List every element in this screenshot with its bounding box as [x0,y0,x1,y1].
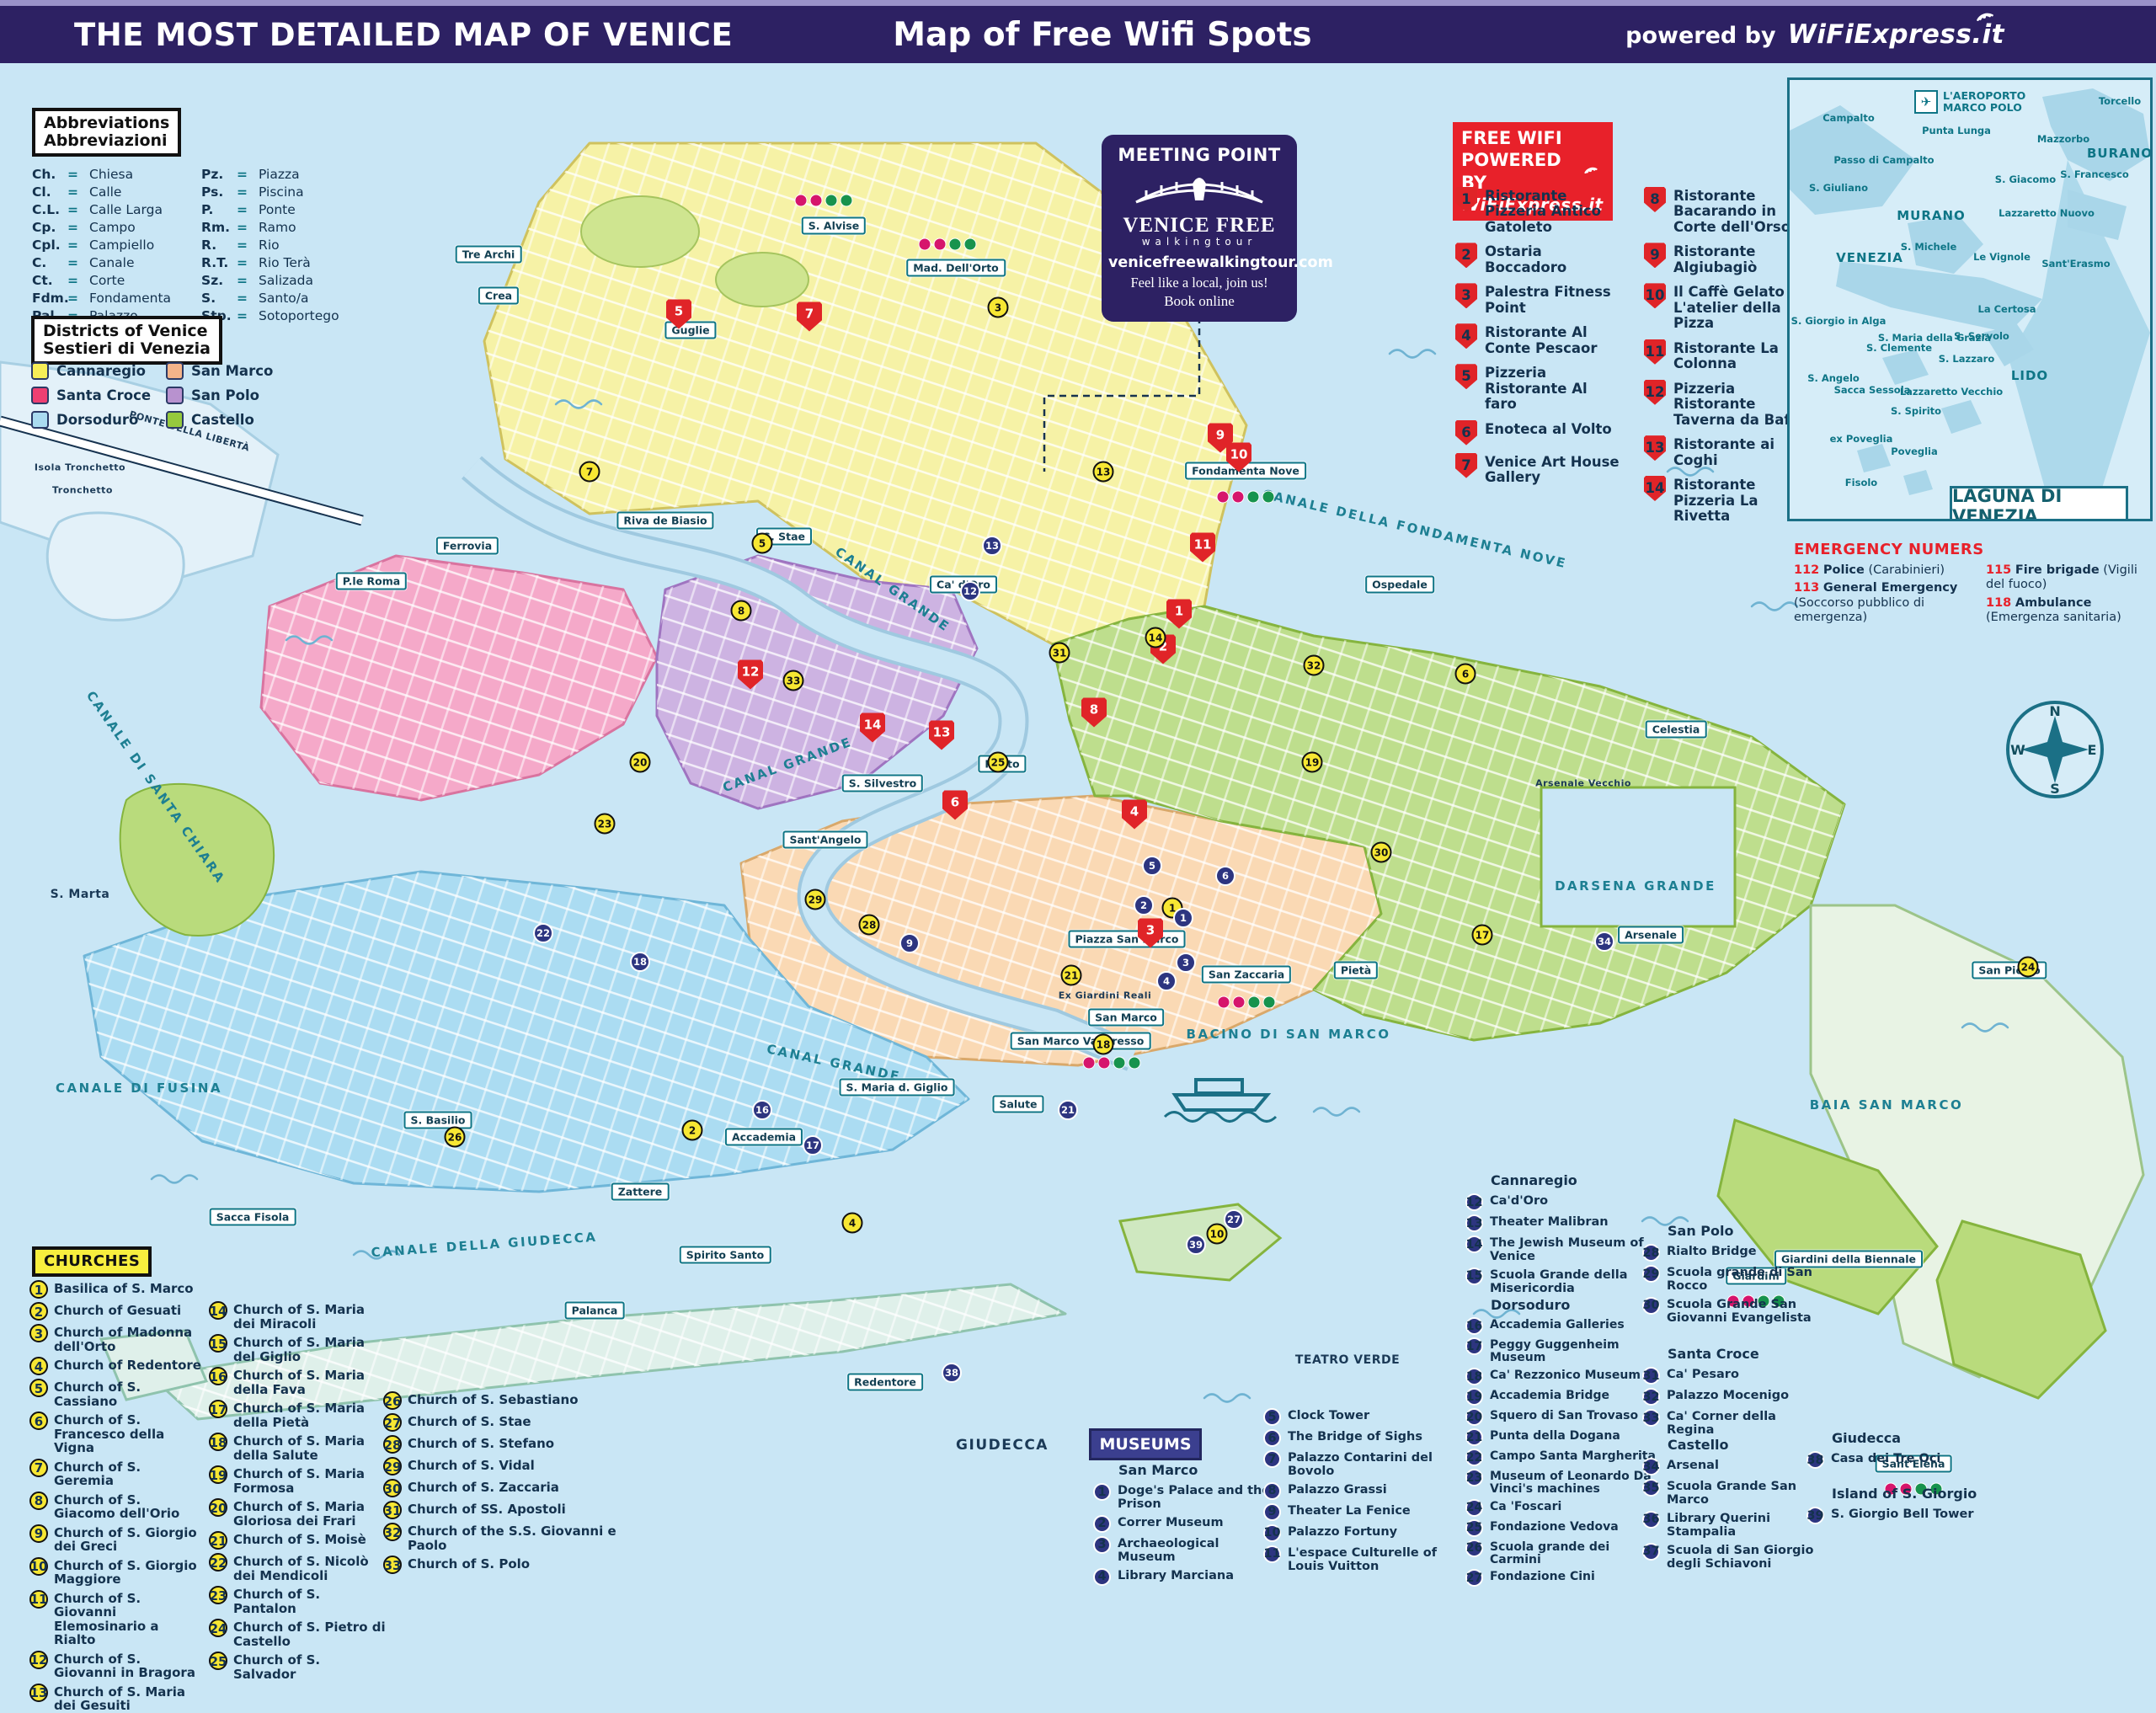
water-label: CANAL GRANDE [721,734,855,795]
church-number-badge: 30 [383,1479,402,1497]
lagoon-place-label: S. Giorgio in Alga [1791,316,1886,326]
vaporetto-line-badges [795,195,853,207]
church-marker: 33 [783,670,804,691]
abbreviation-row: Ct.=Corte [32,273,171,288]
church-number-badge: 28 [383,1435,402,1454]
museum-number-badge: 8 [1263,1482,1281,1500]
museum-list-row: 13 Theater Malibran [1465,1214,1655,1232]
church-marker: 8 [731,600,752,622]
lagoon-place-label: S. Servolo [1954,331,2009,341]
museum-number-badge: 38 [1806,1451,1824,1469]
wifi-spot-marker: 13 [929,721,954,750]
church-marker: 29 [805,889,826,910]
vaporetto-stop-label: Sacca Fisola [210,1209,296,1226]
district-legend-item: Castello [166,411,292,429]
museum-number-badge: 22 [1465,1449,1483,1466]
church-number-badge: 9 [29,1524,48,1543]
wifi-shield-badge: 13 [1644,435,1666,461]
museum-list-row: 31 Ca' Pesaro [1642,1367,1819,1385]
church-list-row: 24 Church of S. Pietro di Castello [209,1619,386,1648]
lagoon-place-label: MURANO [1897,210,1966,223]
museum-list-row: 27 Fondazione Cini [1465,1569,1657,1587]
venice-wifi-map: { "header": { "title": "THE MOST DETAILE… [0,0,2156,1572]
wifi-shield-badge: 14 [1644,476,1666,501]
bridge-logo-icon [1108,165,1290,212]
church-list-row: 22 Church of S. Nicolò dei Mendicoli [209,1553,386,1582]
museum-list-row: 29 Scuola grande di San Rocco [1642,1265,1819,1294]
church-number-badge: 4 [29,1357,48,1375]
museum-list-row: 33 Ca' Corner della Regina [1642,1409,1819,1438]
church-marker: 24 [2018,957,2039,978]
museum-marker: 12 [960,581,980,601]
museum-number-badge: 32 [1642,1388,1660,1406]
museum-number-badge: 30 [1642,1297,1660,1315]
museum-list-row: 16 Accademia Galleries [1465,1317,1657,1335]
water-label: CANALE DI SANTA CHIARA [83,688,228,886]
vaporetto-stop-label: Ospedale [1365,576,1434,594]
church-list-row: 5 Church of S. Cassiano [29,1379,202,1408]
church-list-row: 29 Church of S. Vidal [383,1457,627,1476]
vaporetto-line-badges [919,238,977,251]
church-list-row: 11 Church of S. Giovanni Elemosinario a … [29,1590,202,1647]
lagoon-place-label: S. Angelo [1807,373,1860,383]
vaporetto-stop-label: Piazza San Marco [1069,931,1186,948]
lagoon-place-label: S. Clemente [1866,343,1932,353]
wifi-spot-marker: 6 [942,791,968,820]
museum-marker: 5 [1142,856,1162,876]
church-number-badge: 27 [383,1413,402,1432]
church-marker: 28 [859,915,880,936]
museum-marker: 3 [1176,953,1196,973]
meeting-point-card: MEETING POINT VENICE FREE walkingtour ve… [1102,135,1297,322]
emergency-row: 112 Police (Carabinieri) [1794,563,1964,578]
vaporetto-stop-label: Redentore [847,1374,923,1391]
abbreviations-col1: Ch.=ChiesaCl.=CalleC.L.=Calle LargaCp.=C… [32,167,171,323]
church-number-badge: 1 [29,1280,48,1299]
abbreviation-row: Cp.=Campo [32,220,171,235]
museum-marker: 27 [1224,1209,1244,1230]
wifi-shield-badge: 2 [1455,243,1477,268]
museum-number-badge: 3 [1093,1536,1111,1554]
wifi-spot-row: 6 Enoteca al Volto [1455,420,1624,446]
vaporetto-stop-label: Mad. Dell'Orto [906,259,1006,277]
museum-list-row: 15 Scuola Grande della Misericordia [1465,1267,1655,1296]
wifi-shield-badge: 10 [1644,283,1666,308]
wifi-spot-row: 3 Palestra Fitness Point [1455,283,1624,316]
church-marker: 21 [1061,965,1082,986]
wifi-arcs-icon [1971,0,1999,28]
lagoon-place-label: BURANO [2087,147,2153,161]
church-list-row: 28 Church of S. Stefano [383,1435,627,1454]
district-legend-item: San Marco [166,362,292,380]
wifi-shield-badge: 6 [1455,420,1477,446]
wifi-arcs-icon [1580,157,1602,179]
vaporetto-stop-label: Guglie [664,322,716,339]
church-marker: 7 [579,462,600,483]
museums-section-castello: Castello 34 Arsenal 35 Scuola Grande San… [1642,1437,1823,1572]
museum-list-row: 8 Palazzo Grassi [1263,1482,1449,1500]
church-number-badge: 24 [209,1619,227,1637]
district-color-swatch [166,387,184,404]
wifi-shield-badge: 11 [1644,339,1666,365]
airport-label: ✈ L'AEROPORTOMARCO POLO [1914,90,2025,115]
vaporetto-stop-label: Sant'Angelo [782,831,867,849]
abbreviation-row: Ch.=Chiesa [32,167,171,182]
emergency-col1: 112 Police (Carabinieri)113 General Emer… [1794,563,1964,626]
museum-list-row: 34 Arsenal [1642,1458,1823,1476]
museum-list-row: 39 S. Giorgio Bell Tower [1806,1507,2000,1524]
abbreviation-row: Rm.=Ramo [201,220,339,235]
wifi-spot-list: 1 Ristorante Pizzeria Antico Gatoleto 2 … [1455,187,1812,524]
church-marker: 20 [630,752,651,773]
abbreviation-row: C.=Canale [32,255,171,270]
church-number-badge: 22 [209,1553,227,1572]
church-list-row: 3 Church of Madonna dell'Orto [29,1324,202,1353]
church-list-row: 1 Basilica of S. Marco [29,1280,202,1299]
wifi-spot-marker: 1 [1166,600,1192,629]
church-list-row: 33 Church of S. Polo [383,1556,627,1574]
church-marker: 18 [1093,1034,1114,1055]
museum-list-row: 9 Theater La Fenice [1263,1503,1449,1521]
abbreviation-row: Cpl.=Campiello [32,237,171,253]
museum-marker: 21 [1058,1100,1078,1120]
museum-number-badge: 5 [1263,1408,1281,1426]
church-list-row: 25 Church of S. Salvador [209,1652,386,1681]
museum-marker: 6 [1215,866,1235,886]
church-number-badge: 26 [383,1391,402,1410]
museum-list-row: 5 Clock Tower [1263,1408,1449,1426]
museum-list-row: 6 The Bridge of Sighs [1263,1429,1449,1447]
museums-section-dorsoduro: Dorsoduro 16 Accademia Galleries 17 Pegg… [1465,1297,1657,1587]
wifi-spot-row: 7 Venice Art House Gallery [1455,453,1624,486]
church-list-row: 32 Church of the S.S. Giovanni e Paolo [383,1523,627,1552]
museum-number-badge: 24 [1465,1499,1483,1517]
museum-marker: 9 [899,933,920,953]
church-number-badge: 33 [383,1556,402,1574]
church-list-row: 27 Church of S. Stae [383,1413,627,1432]
museum-marker: 18 [630,952,650,972]
wifi-spot-marker: 14 [860,713,885,743]
lagoon-place-label: Punta Lunga [1922,125,1991,136]
museum-number-badge: 7 [1263,1450,1281,1468]
church-list-row: 30 Church of S. Zaccaria [383,1479,627,1497]
vaporetto-stop-label: Accademia [725,1129,803,1146]
museum-marker: 38 [942,1363,962,1383]
church-list-row: 21 Church of S. Moisè [209,1531,386,1550]
lagoon-place-label: Poveglia [1891,446,1938,456]
museums-title: MUSEUMS [1089,1428,1202,1460]
book-online-text: Book online [1108,293,1290,310]
emergency-row: 118 Ambulance (Emergenza sanitaria) [1986,596,2156,626]
museum-marker: 22 [533,923,553,943]
vaporetto-stop-label: Palanca [565,1302,625,1320]
vaporetto-stop-label: S. Silvestro [842,775,923,792]
water-label: BACINO DI SAN MARCO [1187,1027,1391,1042]
museums-section-san-marco-2: 5 Clock Tower 6 The Bridge of Sighs 7 Pa… [1263,1408,1449,1574]
museum-list-row: 35 Scuola Grande San Marco [1642,1479,1823,1508]
museums-section-santa-croce: Santa Croce 31 Ca' Pesaro 32 Palazzo Moc… [1642,1346,1819,1438]
church-list-row: 10 Church of S. Giorgio Maggiore [29,1557,202,1587]
museum-number-badge: 10 [1263,1524,1281,1542]
page-subtitle: Map of Free Wifi Spots [893,16,1311,54]
vaporetto-stop-label: S. Alvise [802,217,866,235]
wifi-spot-row: 2 Ostaria Boccadoro [1455,243,1624,275]
vaporetto-stop-label: Celestia [1646,721,1707,739]
district-legend-item: Santa Croce [31,387,166,404]
museum-number-badge: 6 [1263,1429,1281,1447]
abbreviation-row: R.=Rio [201,237,339,253]
vaporetto-line-badges [1218,996,1276,1009]
church-number-badge: 19 [209,1465,227,1484]
water-label: BAIA SAN MARCO [1810,1097,1964,1113]
church-marker: 4 [842,1213,863,1234]
wifi-spot-row: 4 Ristorante Al Conte Pescaor [1455,323,1624,356]
museums-section-giudecca: Giudecca 38 Casa dei Tre Oci [1806,1430,1988,1469]
museum-number-badge: 16 [1465,1317,1483,1335]
church-number-badge: 6 [29,1411,48,1430]
wifi-spot-marker: 4 [1122,800,1147,830]
church-marker: 30 [1371,842,1392,863]
museum-list-row: 21 Punta della Dogana [1465,1428,1657,1446]
lagoon-place-label: Le Vignole [1973,252,2031,262]
museum-number-badge: 33 [1642,1409,1660,1427]
museum-number-badge: 28 [1642,1244,1660,1262]
districts-title: Districts of Venice Sestieri di Venezia [31,316,222,365]
vaporetto-stop-label: San Zaccaria [1202,966,1291,984]
church-list-row: 31 Church of SS. Apostoli [383,1501,627,1519]
church-number-badge: 31 [383,1501,402,1519]
museum-number-badge: 12 [1465,1193,1483,1211]
church-marker: 2 [682,1120,703,1141]
museum-list-row: 36 Library Querini Stampalia [1642,1511,1823,1540]
lagoon-place-label: Campalto [1822,113,1875,123]
church-list-row: 18 Church of S. Maria della Salute [209,1433,386,1462]
water-label: DARSENA GRANDE [1555,878,1716,894]
church-number-badge: 32 [383,1523,402,1541]
water-label: CANALE DELLA GIUDECCA [371,1230,598,1261]
churches-col2: 14 Church of S. Maria dei Miracoli 15 Ch… [209,1301,386,1681]
church-list-row: 8 Church of S. Giacomo dell'Orio [29,1492,202,1521]
wifi-spot-marker: 11 [1190,533,1215,563]
museum-number-badge: 11 [1263,1545,1281,1563]
place-label: Ex Giardini Reali [1059,990,1152,1001]
lagoon-place-label: S. Francesco [2060,169,2129,179]
abbreviation-row: Fdm.=Fondamenta [32,291,171,306]
church-number-badge: 10 [29,1557,48,1576]
church-list-row: 14 Church of S. Maria dei Miracoli [209,1301,386,1331]
abbreviation-row: Pz.=Piazza [201,167,339,182]
church-number-badge: 20 [209,1498,227,1517]
church-list-row: 23 Church of S. Pantalon [209,1586,386,1615]
wifi-shield-badge: 5 [1455,364,1477,389]
museum-list-row: 14 The Jewish Museum of Venice [1465,1235,1655,1264]
museum-list-row: 1 Doge's Palace and the Prison [1093,1483,1274,1512]
abbreviation-row: C.L.=Calle Larga [32,202,171,217]
museum-number-badge: 25 [1465,1519,1483,1537]
district-color-swatch [31,411,49,429]
church-number-badge: 3 [29,1324,48,1342]
museum-number-badge: 23 [1465,1469,1483,1486]
museum-number-badge: 17 [1465,1337,1483,1355]
vaporetto-stop-label: Salute [992,1096,1043,1113]
museum-number-badge: 35 [1642,1479,1660,1497]
museum-number-badge: 27 [1465,1569,1483,1587]
wifi-shield-badge: 1 [1455,187,1477,212]
lagoon-place-label: Mazzorbo [2037,134,2089,144]
museum-number-badge: 37 [1642,1543,1660,1561]
museum-marker: 39 [1186,1235,1206,1255]
vaporetto-line-badges [1217,491,1275,504]
church-number-badge: 2 [29,1302,48,1321]
vaporetto-stop-label: Crea [478,287,519,305]
district-color-swatch [31,362,49,380]
place-label: GIUDECCA [956,1437,1049,1454]
museum-number-badge: 4 [1093,1568,1111,1586]
museum-marker: 16 [752,1100,772,1120]
museum-number-badge: 13 [1465,1214,1483,1232]
abbreviation-row: Ps.=Piscina [201,184,339,200]
lagoon-place-label: S. Giacomo [1995,174,2056,184]
church-list-row: 2 Church of Gesuati [29,1302,202,1321]
churches-col3: 26 Church of S. Sebastiano 27 Church of … [383,1391,627,1574]
church-list-row: 17 Church of S. Maria della Pietà [209,1400,386,1429]
church-number-badge: 16 [209,1367,227,1385]
wifi-list-col1: 1 Ristorante Pizzeria Antico Gatoleto 2 … [1455,187,1624,524]
wifi-shield-badge: 7 [1455,453,1477,478]
museum-marker: 34 [1594,931,1614,952]
church-number-badge: 14 [209,1301,227,1320]
museum-number-badge: 9 [1263,1503,1281,1521]
church-number-badge: 7 [29,1459,48,1477]
church-marker: 32 [1304,655,1325,676]
church-marker: 19 [1302,752,1323,773]
church-list-row: 13 Church of S. Maria dei Gesuiti [29,1684,202,1713]
museum-list-row: 7 Palazzo Contarini del Bovolo [1263,1450,1449,1479]
church-marker: 31 [1049,643,1070,664]
emergency-row: 115 Fire brigade (Vigili del fuoco) [1986,563,2156,593]
museum-list-row: 30 Scuola Grande San Giovanni Evangelist… [1642,1297,1819,1326]
wifi-spot-row: 5 Pizzeria Ristorante Al faro [1455,364,1624,412]
museums-section-cannaregio: Cannaregio 12 Ca'd'Oro 13 Theater Malibr… [1465,1172,1655,1296]
vaporetto-stop-label: Riva de Biasio [616,512,713,530]
museums-section-san-polo: San Polo 28 Rialto Bridge 29 Scuola gran… [1642,1223,1819,1326]
abbreviation-row: P.=Ponte [201,202,339,217]
abbreviations-title: Abbreviations Abbreviazioni [32,108,181,157]
lagoon-place-label: ex Poveglia [1830,434,1893,444]
church-marker: 26 [445,1127,466,1148]
museum-list-row: 10 Palazzo Fortuny [1263,1524,1449,1542]
church-number-badge: 11 [29,1590,48,1609]
vaporetto-stop-label: S. Basilio [404,1112,472,1129]
airplane-icon: ✈ [1914,90,1938,114]
wifiexpress-logo: WiFiExpress.it [1788,19,2004,50]
church-list-row: 12 Church of S. Giovanni in Bragora [29,1651,202,1680]
church-marker: 10 [1207,1224,1228,1245]
museum-list-row: 32 Palazzo Mocenigo [1642,1388,1819,1406]
wifi-shield-badge: 3 [1455,283,1477,308]
church-marker: 23 [595,814,616,835]
museum-list-row: 38 Casa dei Tre Oci [1806,1451,1988,1469]
church-list-row: 7 Church of S. Geremia [29,1459,202,1488]
museum-marker: 13 [982,536,1002,556]
powered-by: powered by WiFiExpress.it [1625,19,2004,50]
place-label: Tronchetto [52,485,113,496]
church-number-badge: 5 [29,1379,48,1397]
museum-list-row: 20 Squero di San Trovaso [1465,1408,1657,1426]
church-list-row: 19 Church of S. Maria Formosa [209,1465,386,1495]
church-list-row: 9 Church of S. Giorgio dei Greci [29,1524,202,1554]
abbreviation-row: Sz.=Salizada [201,273,339,288]
districts-legend: Cannaregio San Marco Santa Croce San Pol… [31,362,292,429]
museum-marker: 1 [1173,908,1193,928]
museum-number-badge: 29 [1642,1265,1660,1283]
place-label: Arsenale Vecchio [1535,778,1631,789]
place-label: Isola Tronchetto [35,462,125,473]
lagoon-place-label: Sacca Sessola [1834,385,1911,395]
vaporetto-stop-label: Pietà [1334,962,1378,979]
abbreviation-row: Cl.=Calle [32,184,171,200]
lagoon-place-label: Fisolo [1845,478,1877,488]
vaporetto-stop-label: San Marco Vallaresso [1011,1033,1151,1050]
lagoon-place-label: S. Spirito [1891,406,1941,416]
lagoon-place-label: S. Lazzaro [1939,354,1994,364]
church-list-row: 16 Church of S. Maria della Fava [209,1367,386,1396]
museum-number-badge: 26 [1465,1540,1483,1557]
museum-list-row: 19 Accademia Bridge [1465,1388,1657,1406]
museum-number-badge: 2 [1093,1515,1111,1533]
church-list-row: 6 Church of S. Francesco della Vigna [29,1411,202,1455]
vaporetto-stop-label: S. Maria d. Giglio [840,1079,955,1097]
lagoon-place-label: Lazzaretto Nuovo [1999,208,2095,218]
church-number-badge: 13 [29,1684,48,1702]
header-bar: THE MOST DETAILED MAP OF VENICE Map of F… [0,0,2156,63]
museum-number-badge: 20 [1465,1408,1483,1426]
museum-list-row: 26 Scuola grande dei Carmini [1465,1540,1657,1567]
lagoon-place-label: Lazzaretto Vecchio [1900,387,2003,397]
museum-list-row: 23 Museum of Leonardo Da Vinci's machine… [1465,1469,1657,1497]
museum-list-row: 3 Archaeological Museum [1093,1536,1274,1565]
museum-list-row: 17 Peggy Guggenheim Museum [1465,1337,1657,1365]
wifi-spot-row: 1 Ristorante Pizzeria Antico Gatoleto [1455,187,1624,235]
emergency-col2: 115 Fire brigade (Vigili del fuoco)118 A… [1986,563,2156,626]
lagoon-place-label: S. Michele [1901,242,1957,252]
museum-list-row: 2 Correr Museum [1093,1515,1274,1533]
churches-title: CHURCHES [32,1246,152,1277]
church-marker: 25 [988,752,1009,773]
museums-section-san-marco: San Marco 1 Doge's Palace and the Prison… [1093,1462,1274,1586]
wifi-shield-badge: 4 [1455,323,1477,349]
church-number-badge: 21 [209,1531,227,1550]
church-number-badge: 18 [209,1433,227,1451]
museum-number-badge: 34 [1642,1458,1660,1476]
lagoon-place-label: Torcello [2099,96,2141,106]
lagoon-place-label: LIDO [2011,370,2048,383]
museum-list-row: 4 Library Marciana [1093,1568,1274,1586]
museum-number-badge: 31 [1642,1367,1660,1385]
page-title: THE MOST DETAILED MAP OF VENICE [74,17,733,53]
museum-list-row: 12 Ca'd'Oro [1465,1193,1655,1211]
vaporetto-stop-label: P.le Roma [336,573,407,590]
wifi-spot-marker: 7 [797,302,822,332]
church-number-badge: 23 [209,1586,227,1604]
emergency-row: 113 General Emergency (Soccorso pubblico… [1794,581,1964,625]
vaporetto-stop-label: Tre Archi [456,246,522,264]
water-label: CANALE DI FUSINA [56,1081,222,1096]
vaporetto-stop-label: Ferrovia [436,537,499,555]
museum-marker: 17 [803,1135,823,1155]
abbreviation-row: R.T.=Rio Terà [201,255,339,270]
church-marker: 14 [1145,627,1166,648]
